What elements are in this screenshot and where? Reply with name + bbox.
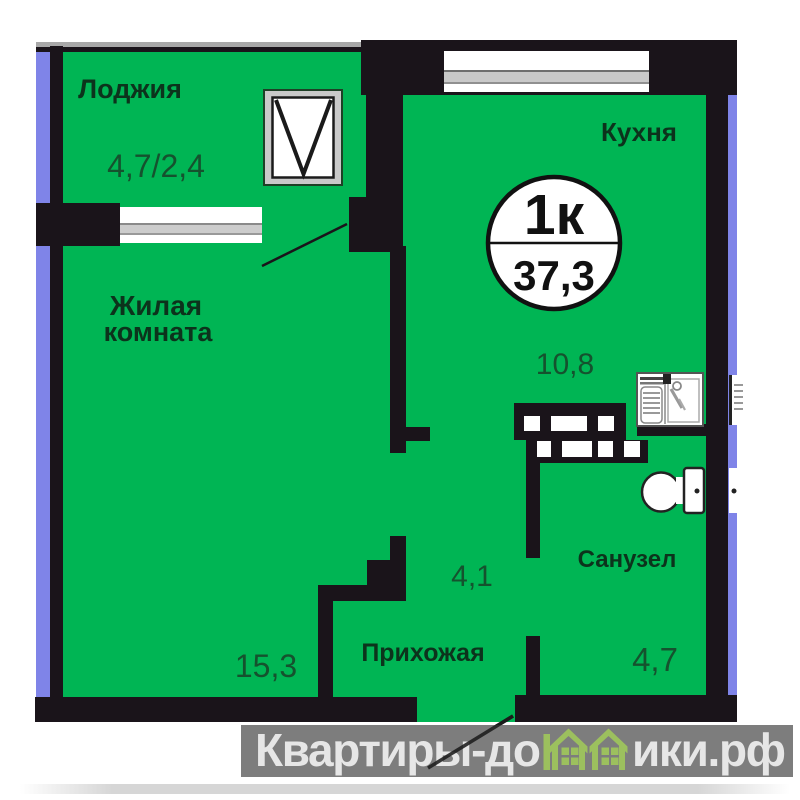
svg-text:Прихожая: Прихожая — [361, 639, 484, 667]
svg-text:4,7: 4,7 — [632, 641, 678, 678]
svg-text:комната: комната — [104, 317, 214, 347]
svg-text:4,7/2,4: 4,7/2,4 — [107, 148, 205, 184]
svg-text:10,8: 10,8 — [536, 348, 594, 381]
svg-text:1к: 1к — [524, 183, 585, 247]
svg-text:Квартиры-до: Квартиры-до — [255, 724, 541, 776]
svg-text:4,1: 4,1 — [451, 560, 493, 593]
svg-text:15,3: 15,3 — [235, 648, 297, 684]
svg-text:ики.рф: ики.рф — [632, 724, 786, 776]
svg-text:Лоджия: Лоджия — [78, 74, 182, 104]
svg-text:37,3: 37,3 — [513, 252, 595, 299]
svg-text:Санузел: Санузел — [578, 546, 677, 573]
svg-text:Кухня: Кухня — [601, 117, 677, 147]
